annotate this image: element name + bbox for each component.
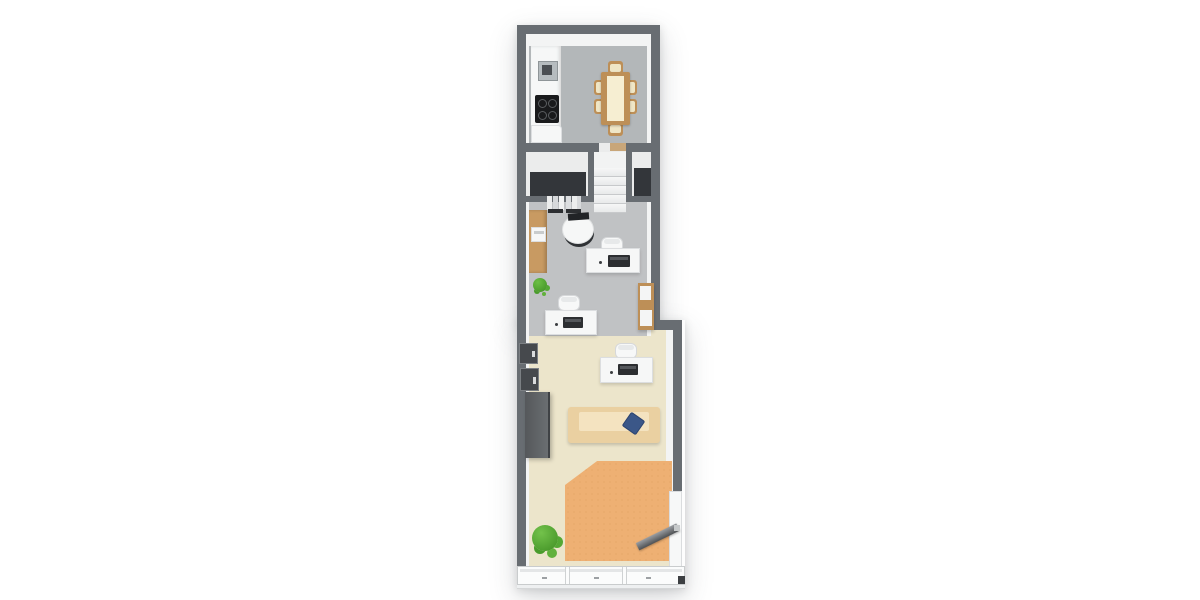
storefront (517, 566, 685, 585)
burner (538, 111, 547, 120)
wall-left (517, 25, 526, 573)
stair-tread (594, 204, 626, 213)
laptop (608, 255, 630, 267)
wall-under-right-room (632, 196, 651, 202)
coat-rack (547, 196, 581, 213)
storefront-corner-post (678, 576, 685, 584)
wall-divider-left (588, 143, 594, 202)
table-runner (607, 76, 624, 121)
mouse (599, 261, 602, 264)
desk-2 (545, 310, 597, 335)
rug (565, 461, 672, 561)
desk-3 (600, 357, 653, 383)
wall-divider-right (626, 143, 632, 202)
inner-face-top (526, 34, 651, 46)
storefront-sill (520, 569, 682, 572)
burner (538, 99, 547, 108)
desk-1 (586, 248, 640, 273)
floorplan (515, 25, 695, 590)
door-hinge (674, 525, 680, 531)
stair-tread (594, 168, 626, 177)
storefront-mullion (622, 567, 627, 584)
floorplan-canvas[interactable] (0, 0, 1200, 600)
window-handle (594, 577, 599, 579)
sink (538, 61, 558, 81)
base-cabinet (531, 125, 562, 143)
wall-top (517, 25, 660, 34)
burner (548, 111, 557, 120)
closet-right-interior (634, 168, 651, 196)
stair-tread (594, 195, 626, 204)
storefront-mullion (565, 567, 570, 584)
sofa (568, 407, 660, 443)
mouse (610, 371, 613, 374)
window-handle (646, 577, 651, 579)
laptop (563, 317, 583, 328)
plant-large (532, 525, 558, 551)
window-handle (542, 577, 547, 579)
tall-cabinet (638, 283, 654, 330)
inner-face-left (526, 34, 529, 566)
reception-monitor (568, 212, 589, 220)
wardrobe (525, 392, 550, 458)
coat-rail (548, 209, 563, 213)
wall-niche-2 (520, 368, 539, 391)
sink-basin (542, 65, 552, 75)
plant-small (533, 278, 547, 292)
cooktop (535, 95, 559, 123)
wall-step (651, 320, 682, 330)
burner (548, 99, 557, 108)
wall-niche-1 (519, 343, 538, 364)
wall-right-upper (651, 25, 660, 320)
printer (531, 227, 546, 242)
storefront-outer-edge (517, 585, 685, 589)
dining-table (601, 72, 630, 125)
office-chair-2 (558, 295, 580, 311)
laptop (618, 364, 638, 375)
stair-tread (594, 177, 626, 186)
wall-right-lower (673, 330, 682, 497)
mouse (555, 323, 558, 326)
stair-tread (594, 186, 626, 195)
wall-kitchen-right (631, 143, 651, 152)
staircase (594, 152, 626, 213)
closet-left-interior (530, 172, 586, 196)
